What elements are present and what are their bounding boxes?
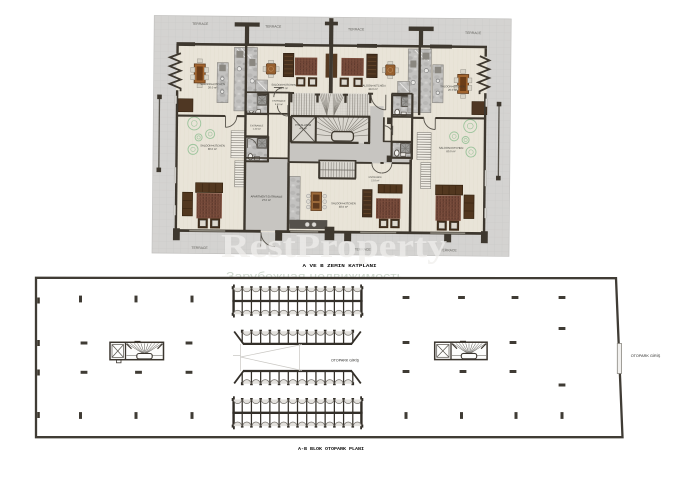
svg-text:TERRACE: TERRACE xyxy=(192,22,209,26)
svg-text:TERRACE: TERRACE xyxy=(191,246,208,250)
svg-text:27.0 m²: 27.0 m² xyxy=(262,198,271,202)
svg-text:A-B BLOK OTOPARK PLANI: A-B BLOK OTOPARK PLANI xyxy=(298,446,364,452)
svg-text:26.0 m²: 26.0 m² xyxy=(208,85,217,89)
svg-text:4.0 m²: 4.0 m² xyxy=(299,126,307,130)
svg-text:2.10 m²: 2.10 m² xyxy=(371,179,379,182)
svg-text:48.0 m²: 48.0 m² xyxy=(339,205,348,209)
svg-text:RestProperty: RestProperty xyxy=(221,228,447,265)
svg-text:80.0 m²: 80.0 m² xyxy=(208,147,217,151)
svg-text:OTOPARK GİRİŞ: OTOPARK GİRİŞ xyxy=(331,358,360,363)
svg-text:A VE B ZEMIN KATPLANI: A VE B ZEMIN KATPLANI xyxy=(303,263,377,269)
svg-text:29.0 m²: 29.0 m² xyxy=(369,87,378,91)
svg-text:TERRACE: TERRACE xyxy=(465,31,482,35)
svg-text:1.40 m²: 1.40 m² xyxy=(253,128,261,131)
svg-text:3.40 m²: 3.40 m² xyxy=(275,103,283,106)
svg-text:TERRACE: TERRACE xyxy=(348,27,365,31)
svg-text:TERRACE: TERRACE xyxy=(265,25,282,29)
svg-text:80.0 m²: 80.0 m² xyxy=(446,149,455,153)
svg-text:29.0 m²: 29.0 m² xyxy=(279,86,288,90)
svg-text:OTOPARK GİRİŞ: OTOPARK GİRİŞ xyxy=(631,353,661,358)
svg-text:26.0 m²: 26.0 m² xyxy=(448,88,457,92)
